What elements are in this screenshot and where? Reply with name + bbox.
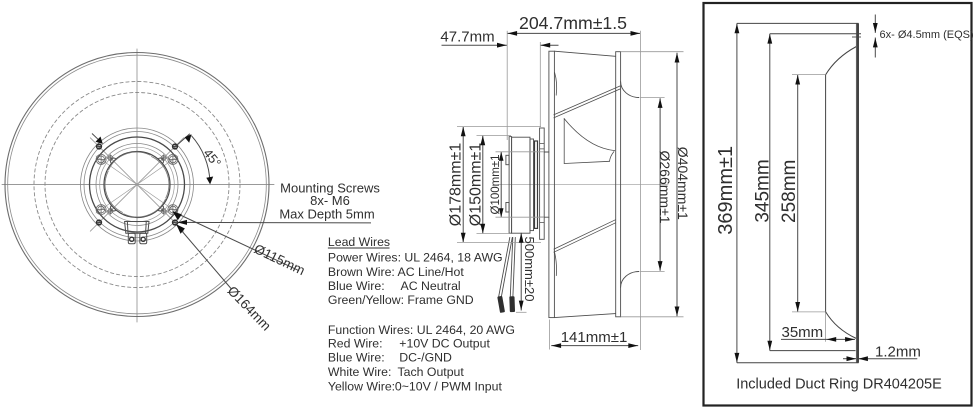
svg-text:Tach Output: Tach Output — [398, 365, 465, 379]
svg-text:345mm: 345mm — [752, 159, 773, 222]
svg-text:DC-/GND: DC-/GND — [399, 351, 452, 365]
svg-text:258mm: 258mm — [779, 160, 800, 223]
svg-text:0~10V / PWM Input: 0~10V / PWM Input — [395, 380, 503, 394]
svg-text:Max Depth 5mm: Max Depth 5mm — [279, 206, 374, 221]
svg-text:Blue Wire:: Blue Wire: — [328, 279, 385, 293]
svg-text:6x- Ø4.5mm (EQS): 6x- Ø4.5mm (EQS) — [880, 29, 974, 41]
svg-text:Ø404mm±1: Ø404mm±1 — [675, 147, 691, 220]
svg-text:Ø100mm±1: Ø100mm±1 — [490, 155, 502, 215]
svg-text:White Wire:: White Wire: — [328, 365, 392, 379]
svg-text:Red Wire:: Red Wire: — [328, 337, 383, 351]
svg-text:47.7mm: 47.7mm — [440, 29, 494, 46]
svg-text:Function Wires: UL 2464, 20 AW: Function Wires: UL 2464, 20 AWG — [328, 323, 515, 337]
svg-text:Blue Wire:: Blue Wire: — [328, 351, 385, 365]
svg-text:Brown Wire:: Brown Wire: — [328, 265, 395, 279]
svg-text:Lead Wires: Lead Wires — [328, 235, 390, 249]
svg-text:Yellow Wire:: Yellow Wire: — [328, 380, 395, 394]
svg-text:Ø178mm±1: Ø178mm±1 — [448, 143, 465, 227]
svg-text:204.7mm±1.5: 204.7mm±1.5 — [519, 13, 627, 33]
svg-text:Ø266mm±1: Ø266mm±1 — [657, 151, 673, 224]
svg-text:141mm±1: 141mm±1 — [561, 329, 628, 346]
svg-text:AC Line/Hot: AC Line/Hot — [398, 265, 465, 279]
svg-text:Green/Yellow: Frame GND: Green/Yellow: Frame GND — [328, 293, 474, 307]
svg-text:AC Neutral: AC Neutral — [401, 279, 461, 293]
svg-text:500mm±20: 500mm±20 — [522, 237, 537, 302]
svg-text:Included Duct Ring DR404205E: Included Duct Ring DR404205E — [736, 377, 942, 393]
svg-text:35mm: 35mm — [782, 324, 824, 341]
svg-text:Power Wires: UL 2464, 18 AWG: Power Wires: UL 2464, 18 AWG — [328, 251, 503, 265]
svg-text:1.2mm: 1.2mm — [875, 343, 921, 360]
svg-text:+10V DC Output: +10V DC Output — [399, 337, 490, 351]
svg-text:Ø150mm±1: Ø150mm±1 — [468, 143, 485, 227]
svg-text:369mm±1: 369mm±1 — [715, 146, 737, 235]
